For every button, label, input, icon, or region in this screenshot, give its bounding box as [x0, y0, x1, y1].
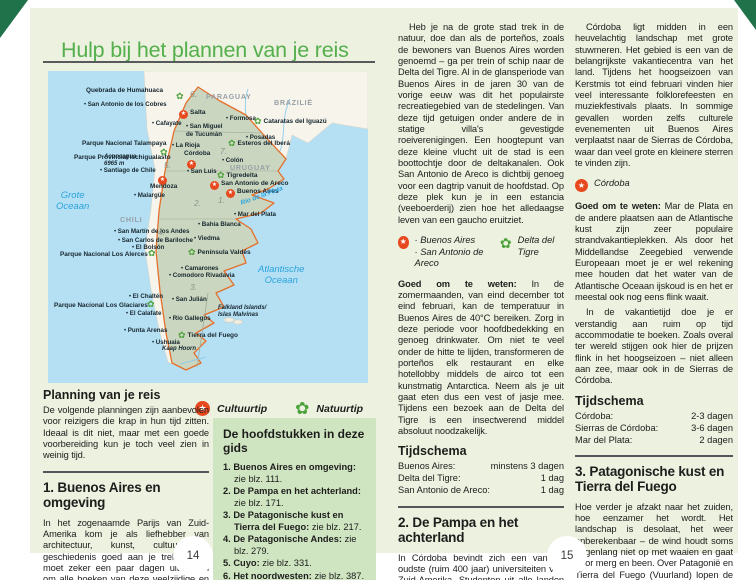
good-to-know-lead: Goed om te weten:	[398, 279, 517, 289]
map-label: ✿	[147, 300, 157, 309]
map-label: San Miguel de Tucumán	[186, 123, 222, 138]
map-label: El Calafate	[126, 310, 161, 318]
map-label: Aconcagua 6965 m	[104, 154, 136, 168]
culture-tip-place: Córdoba	[594, 178, 630, 190]
section1-heading: 1. Buenos Aires en omgeving	[43, 480, 209, 510]
map-label: Parque Nacional Talampaya	[82, 140, 166, 147]
chapter-item: 5. Cuyo: zie blz. 331.	[223, 558, 367, 570]
nature-tip-places: Delta del Tigre	[518, 235, 564, 258]
section3-paragraph: Hoe verder je afzakt naar het zuiden, ho…	[575, 502, 733, 580]
map-label: Río Gallegos	[169, 315, 211, 323]
map-label: 7.	[220, 147, 227, 157]
corner-tab-top-left	[0, 0, 28, 38]
planning-paragraph: De volgende planningen zijn aanbevolen v…	[43, 405, 209, 462]
page-number-left: 14	[173, 536, 213, 576]
schedule-title: Tijdschema	[575, 394, 733, 408]
page-title: Hulp bij het plannen van je reis	[61, 38, 349, 63]
map-label: Mar del Plata	[234, 211, 276, 219]
map-label: ✿	[176, 92, 186, 101]
col1-tips: ★ · Buenos Aires· San Antonio de Areco ✿…	[398, 235, 564, 270]
good-to-know-text: In de zomermaanden, van eind december to…	[398, 279, 564, 436]
chapters-box-title: De hoofdstukken in deze gids	[223, 427, 367, 455]
nature-flower-icon: ✿	[254, 116, 262, 126]
chapter-item: 1. Buenos Aires en omgeving: zie blz. 11…	[223, 462, 367, 485]
culture-tip: ★ · Buenos Aires· San Antonio de Areco	[398, 235, 492, 270]
map-label: PARAGUAY	[206, 93, 252, 101]
nature-flower-icon: ✿	[217, 170, 225, 180]
tip-place: · San Antonio de Areco	[415, 247, 492, 270]
section-divider	[43, 471, 209, 473]
legend-nature-label: Natuurtip	[316, 403, 363, 415]
chapter-item: 2. De Pampa en het achterland: zie blz. …	[223, 486, 367, 509]
map-label: Parque Nacional Los Alerces	[60, 251, 148, 258]
map-label: Comodoro Rivadavia	[169, 272, 235, 280]
left-page: Hulp bij het plannen van je reis	[35, 8, 378, 553]
chapter-item: 4. De Patagonische Andes: zie blz. 279.	[223, 534, 367, 557]
nature-flower-icon: ✿	[228, 138, 236, 148]
culture-tip: ★ Córdoba	[575, 178, 630, 192]
map-legend: ★ Cultuurtip ✿ Natuurtip	[195, 400, 363, 417]
map-label: ✿Tierra del Fuego	[178, 331, 238, 340]
tip-place: Delta del Tigre	[518, 235, 564, 258]
schedule-row: Mar del Plata:2 dagen	[575, 434, 733, 446]
map-label: Santiago de Chile	[100, 167, 156, 175]
map-label: San Martín de los Andes	[114, 228, 189, 236]
good-to-know-text: Mar de Plata en de andere plaatsen aan d…	[575, 201, 733, 302]
map-label: Parque Nacional Los Glaciares	[54, 302, 148, 309]
map-label: 2.	[194, 199, 201, 209]
map-label: BRAZILIË	[274, 99, 313, 107]
map-labels: Quebrada de Humahuaca✿6.PARAGUAYBRAZILIË…	[48, 71, 368, 383]
map-label: ★Salta	[179, 109, 206, 119]
section3-heading: 3. Patagonische kust en Tierra del Fuego	[575, 464, 733, 494]
col2-tip: ★ Córdoba	[575, 178, 733, 192]
nature-flower-icon: ✿	[188, 247, 196, 257]
schedule-row: Sierras de Córdoba:3-6 dagen	[575, 422, 733, 434]
schedule-table: Buenos Aires:minstens 3 dagenDelta del T…	[398, 460, 564, 496]
map-label: 1.	[218, 196, 225, 206]
map-label: Mendoza	[150, 183, 177, 190]
argentina-map: Quebrada de Humahuaca✿6.PARAGUAYBRAZILIË…	[48, 71, 368, 383]
schedule-title: Tijdschema	[398, 444, 564, 458]
culture-star-icon: ★	[575, 179, 588, 192]
section2-heading: 2. De Pampa en het achterland	[398, 515, 564, 545]
map-label: La Rioja	[172, 142, 200, 150]
culture-star-icon: ★	[179, 110, 188, 119]
map-label: Grote Oceaan	[56, 191, 89, 213]
book-spread-photo: Hulp bij het plannen van je reis	[0, 0, 756, 580]
map-label: 5.	[164, 161, 171, 171]
schedule-row: Delta del Tigre:1 dag	[398, 472, 564, 484]
col2-paragraph: Córdoba ligt midden in een heuvelachtig …	[575, 22, 733, 169]
chapter-item: 3. De Patagonische kust en Tierra del Fu…	[223, 510, 367, 533]
map-label: ✿	[148, 249, 158, 258]
culture-star-icon: ★	[398, 236, 409, 249]
chapter-item: 6. Het noordwesten: zie blz. 387.	[223, 571, 367, 580]
nature-flower-icon: ✿	[148, 248, 156, 258]
right-page: Heb je na de grote stad trek in de natuu…	[393, 8, 735, 553]
schedule-row: San Antonio de Areco:1 dag	[398, 484, 564, 496]
map-label: CHILI	[120, 216, 142, 224]
right-column-2: Córdoba ligt midden in een heuvelachtig …	[575, 22, 733, 580]
map-label: San Luis	[187, 168, 217, 176]
chapters-list: 1. Buenos Aires en omgeving: zie blz. 11…	[223, 462, 367, 580]
map-label: ✿Península Valdés	[188, 248, 251, 257]
map-label: Cafayate	[152, 120, 182, 128]
section-divider	[575, 455, 733, 457]
col2-good-to-know: Goed om te weten: Mar de Plata en de and…	[575, 201, 733, 303]
page-number-right: 15	[547, 536, 587, 576]
culture-star-icon: ★	[226, 189, 235, 198]
right-column-1: Heb je na de grote stad trek in de natuu…	[398, 22, 564, 580]
section2-paragraph: In Córdoba bevindt zich een van de oudst…	[398, 553, 564, 580]
map-label: 3.	[190, 283, 197, 293]
map-label: Falkland Islands/ Islas Malvinas	[218, 305, 266, 319]
schedule-row: Córdoba:2-3 dagen	[575, 410, 733, 422]
culture-star-icon: ★	[210, 181, 219, 190]
section-divider	[398, 506, 564, 508]
culture-tip-places: · Buenos Aires· San Antonio de Areco	[415, 235, 492, 270]
map-label: Bahía Blanca	[198, 221, 241, 229]
map-label: San Julián	[172, 296, 207, 304]
legend-nature: ✿ Natuurtip	[295, 400, 363, 417]
map-label: ✿Esteros del Iberá	[228, 139, 290, 148]
schedule-table: Córdoba:2-3 dagenSierras de Córdoba:3-6 …	[575, 410, 733, 446]
legend-culture-label: Cultuurtip	[217, 403, 267, 415]
map-label: ✿Cataratas del Iguazú	[254, 117, 327, 126]
nature-flower-icon: ✿	[295, 400, 309, 417]
col2-paragraph-2: In de vakantietijd doe je er verstandig …	[575, 307, 733, 386]
page-spread: Hulp bij het plannen van je reis	[30, 8, 738, 553]
nature-flower-icon: ✿	[176, 91, 184, 101]
nature-flower-icon: ✿	[500, 236, 512, 250]
schedule-row: Buenos Aires:minstens 3 dagen	[398, 460, 564, 472]
good-to-know-lead: Goed om te weten:	[575, 201, 661, 211]
nature-flower-icon: ✿	[147, 299, 155, 309]
title-divider	[43, 61, 375, 63]
map-label: Quebrada de Humahuaca	[86, 87, 163, 94]
map-label: Malargüe	[134, 192, 165, 200]
map-label: Viedma	[194, 235, 220, 243]
tip-place: · Buenos Aires	[415, 235, 492, 247]
map-label: Atlantische Oceaan	[258, 265, 304, 287]
map-label: ✿Tigredelta	[217, 171, 258, 180]
col1-good-to-know: Goed om te weten: In de zomermaanden, va…	[398, 279, 564, 438]
nature-tip: ✿ Delta del Tigre	[500, 235, 564, 270]
map-label: 6.	[190, 90, 197, 100]
planning-heading: Planning van je reis	[43, 388, 209, 402]
chapters-box: De hoofdstukken in deze gids 1. Buenos A…	[213, 418, 376, 580]
map-label: Punta Arenas	[124, 327, 167, 335]
map-label: San Antonio de los Cobres	[84, 101, 167, 109]
map-label: Kaap Hoorn	[162, 346, 196, 353]
col1-paragraph: Heb je na de grote stad trek in de natuu…	[398, 22, 564, 226]
map-label: Córdoba	[184, 150, 210, 157]
map-label: Formosa	[226, 115, 256, 123]
